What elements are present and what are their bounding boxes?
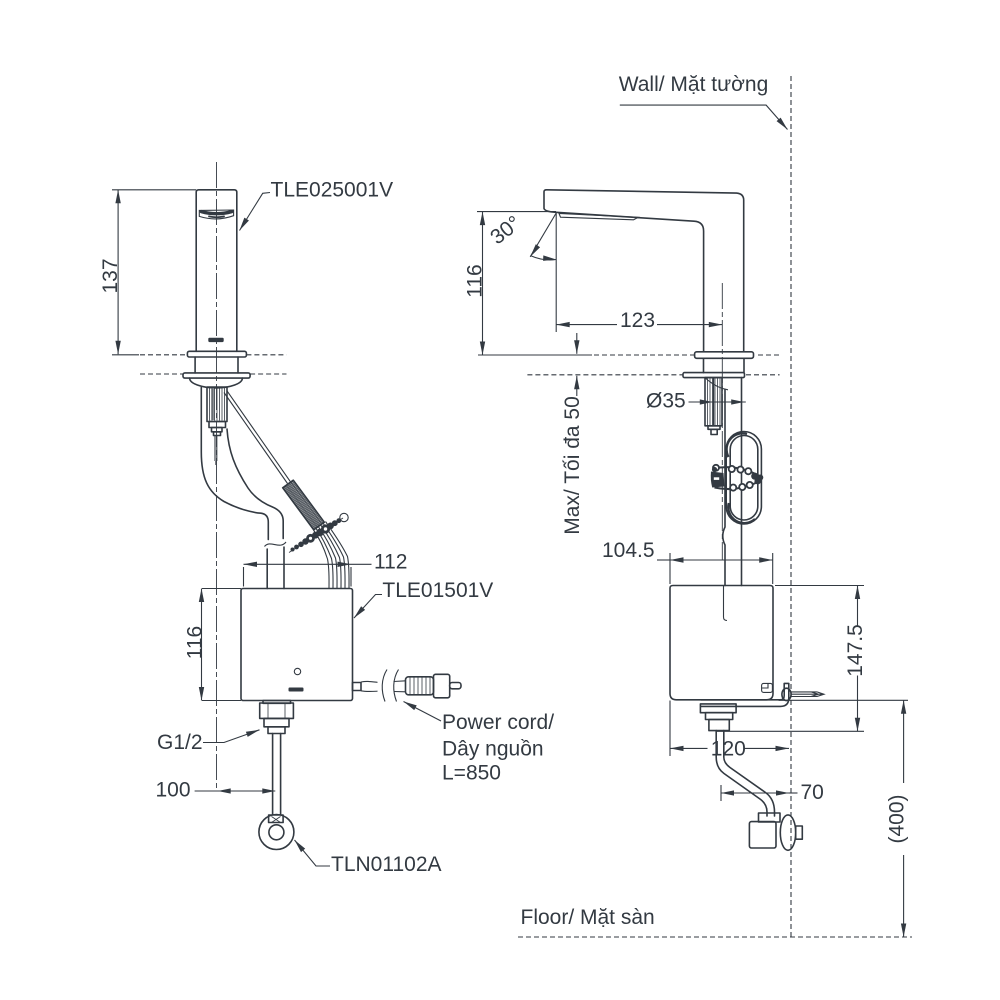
svg-text:Max/ Tối đa 50: Max/ Tối đa 50	[561, 396, 584, 535]
svg-text:123: 123	[620, 309, 655, 332]
svg-text:120: 120	[711, 738, 746, 761]
svg-text:Power cord/: Power cord/	[442, 711, 554, 734]
svg-text:L=850: L=850	[442, 762, 501, 785]
svg-text:G1/2: G1/2	[157, 731, 203, 754]
svg-text:TLE01501V: TLE01501V	[382, 579, 493, 602]
svg-text:Ø35: Ø35	[646, 390, 686, 413]
svg-text:137: 137	[99, 258, 122, 293]
svg-text:104.5: 104.5	[602, 539, 655, 562]
svg-text:TLN01102A: TLN01102A	[331, 853, 442, 876]
svg-text:Wall/ Mặt tường: Wall/ Mặt tường	[619, 73, 769, 96]
svg-text:100: 100	[156, 778, 191, 801]
svg-text:Floor/ Mặt sàn: Floor/ Mặt sàn	[521, 906, 655, 929]
svg-text:30°: 30°	[486, 212, 525, 250]
svg-text:(400): (400)	[886, 794, 909, 843]
svg-text:TLE025001V: TLE025001V	[271, 179, 394, 202]
svg-text:116: 116	[464, 264, 487, 297]
svg-text:116: 116	[184, 626, 207, 659]
svg-text:147.5: 147.5	[844, 624, 867, 677]
svg-text:Dây nguồn: Dây nguồn	[442, 738, 544, 761]
svg-text:70: 70	[801, 781, 824, 804]
svg-text:112: 112	[374, 551, 407, 574]
